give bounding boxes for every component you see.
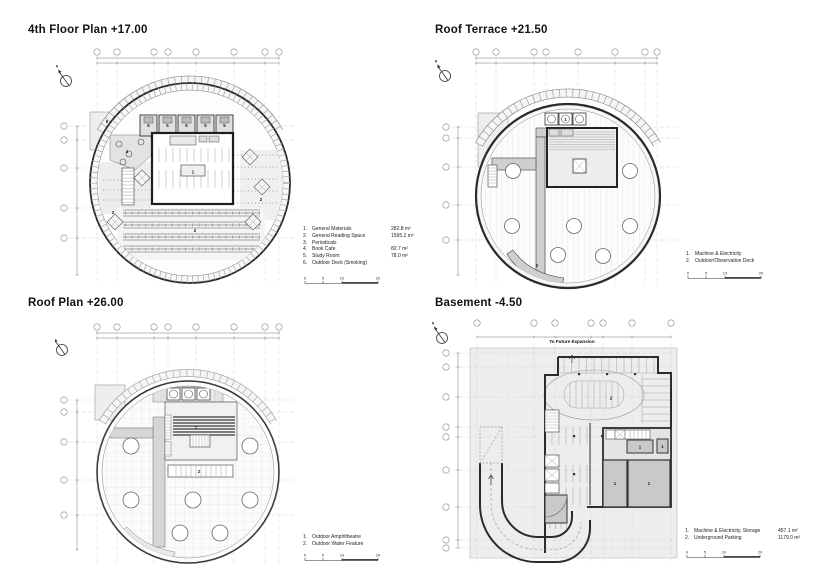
scale-tick-label: 5	[705, 271, 708, 276]
scale-tick-label: 20	[376, 276, 381, 281]
roof-plan-drawing: N	[55, 315, 300, 570]
legend-item: 2.Outdoor Water Feature	[303, 541, 425, 548]
scale-tick-label: 20	[376, 553, 381, 558]
legend-item: 2.General Reading Space1595.2 m²	[303, 233, 425, 240]
roof-terrace-plan-drawing: N	[430, 40, 690, 290]
page-title: Roof Plan +26.00	[28, 297, 124, 309]
page-title: Basement -4.50	[435, 297, 522, 309]
legend-item: 1.Outdoor Amphitheatre	[303, 534, 425, 541]
scale-tick-label: 20	[759, 271, 764, 276]
north-label: N	[56, 65, 59, 69]
machine-room	[547, 128, 617, 187]
legend-item: 2.Outdoor/Observation Deck	[686, 258, 808, 265]
scale-tick-label: 10	[340, 276, 345, 281]
scale-tick-label: 20	[758, 550, 763, 555]
scale-tick-label: 5	[322, 276, 325, 281]
corridor	[536, 137, 545, 277]
north-arrow-icon: N	[432, 322, 448, 344]
scale-tick-label: 5	[704, 550, 707, 555]
machine-storage-block	[590, 423, 671, 507]
stair	[488, 165, 497, 187]
scale-tick-label: 10	[722, 550, 727, 555]
north-arrow-icon: N	[55, 334, 68, 356]
legend-item: 1.Machine & Electricity, Storage457.1 m²	[685, 528, 815, 535]
scale-tick-label: 0	[304, 276, 307, 281]
north-label: N	[432, 322, 435, 326]
scale-tick-label: 0	[687, 271, 690, 276]
general-materials-room	[152, 133, 233, 204]
page-title: 4th Floor Plan +17.00	[28, 24, 148, 36]
legend-item: 6.Outdoor Deck (Smoking)	[303, 260, 425, 267]
quadrant-roof-plan: Roof Plan +26.00	[0, 290, 410, 579]
scale-bar: 0 5 10 20	[303, 275, 381, 287]
fan-room	[545, 495, 567, 523]
north-arrow-icon: N	[435, 60, 451, 82]
scale-tick-label: 0	[686, 550, 689, 555]
legend-roof-plan: 1.Outdoor Amphitheatre 2.Outdoor Water F…	[303, 534, 425, 548]
scale-bar: 0 5 10 20	[686, 270, 764, 282]
scale-tick-label: 10	[340, 553, 345, 558]
legend-item: 1.Machine & Electricity	[686, 251, 808, 258]
basement-plan-drawing: N	[430, 315, 720, 575]
scale-bar: 0 5 10 20	[685, 549, 763, 561]
scale-tick-label: 5	[322, 553, 325, 558]
legend-item: 1.General Materials282.8 m²	[303, 226, 425, 233]
quadrant-basement: Basement -4.50	[410, 290, 818, 579]
legend-fourth-floor: 1.General Materials282.8 m² 2.General Re…	[303, 226, 425, 267]
stair	[122, 168, 134, 205]
legend-roof-terrace: 1.Machine & Electricity 2.Outdoor/Observ…	[686, 251, 808, 265]
scale-bar: 0 5 10 20	[303, 552, 381, 564]
fourth-floor-plan-drawing: N	[55, 40, 300, 290]
scale-tick-label: 10	[723, 271, 728, 276]
corridor	[153, 417, 165, 547]
quadrant-roof-terrace: Roof Terrace +21.50	[410, 0, 818, 290]
legend-item: 5.Study Room78.0 m²	[303, 253, 425, 260]
amphitheatre	[165, 402, 237, 460]
legend-basement: 1.Machine & Electricity, Storage457.1 m²…	[685, 528, 815, 542]
page-title: Roof Terrace +21.50	[435, 24, 548, 36]
north-label: N	[435, 60, 438, 64]
legend-item: 3.Periodicals	[303, 240, 425, 247]
drawing-sheet: 4th Floor Plan +17.00	[0, 0, 818, 579]
water-feature	[168, 465, 233, 477]
quadrant-fourth-floor: 4th Floor Plan +17.00	[0, 0, 410, 290]
north-arrow-icon: N	[56, 65, 72, 87]
legend-item: 2.Underground Parking1179.0 m²	[685, 535, 815, 542]
scale-tick-label: 0	[304, 553, 307, 558]
future-expansion-note: To Future Expansion	[541, 339, 603, 344]
legend-item: 4.Book Cafe82.7 m²	[303, 246, 425, 253]
